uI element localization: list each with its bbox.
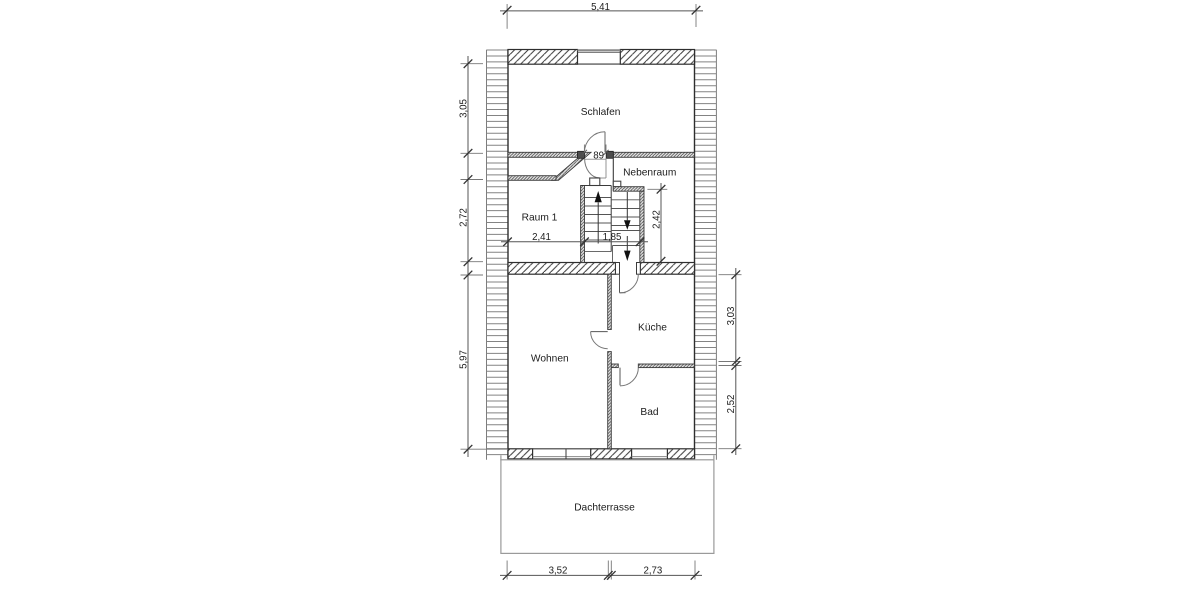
svg-text:2,42: 2,42 [652, 210, 663, 229]
svg-text:2,41: 2,41 [532, 232, 551, 243]
svg-text:3,05: 3,05 [458, 99, 469, 118]
svg-text:1,85: 1,85 [603, 232, 622, 243]
svg-text:Raum 1: Raum 1 [522, 212, 558, 223]
svg-text:Küche: Küche [638, 323, 667, 334]
svg-text:Dachterrasse: Dachterrasse [574, 503, 635, 514]
svg-text:Nebenraum: Nebenraum [623, 167, 676, 178]
svg-text:2,73: 2,73 [643, 566, 662, 577]
svg-text:5,41: 5,41 [591, 2, 610, 13]
svg-text:Bad: Bad [640, 407, 658, 418]
svg-text:Schlafen: Schlafen [581, 107, 621, 118]
svg-text:Wohnen: Wohnen [531, 354, 569, 365]
svg-text:2,52: 2,52 [726, 395, 737, 414]
svg-text:2,72: 2,72 [458, 208, 469, 227]
svg-text:89: 89 [593, 151, 604, 162]
svg-text:3,03: 3,03 [726, 307, 737, 326]
svg-text:5,97: 5,97 [458, 350, 469, 369]
svg-text:3,52: 3,52 [549, 566, 568, 577]
